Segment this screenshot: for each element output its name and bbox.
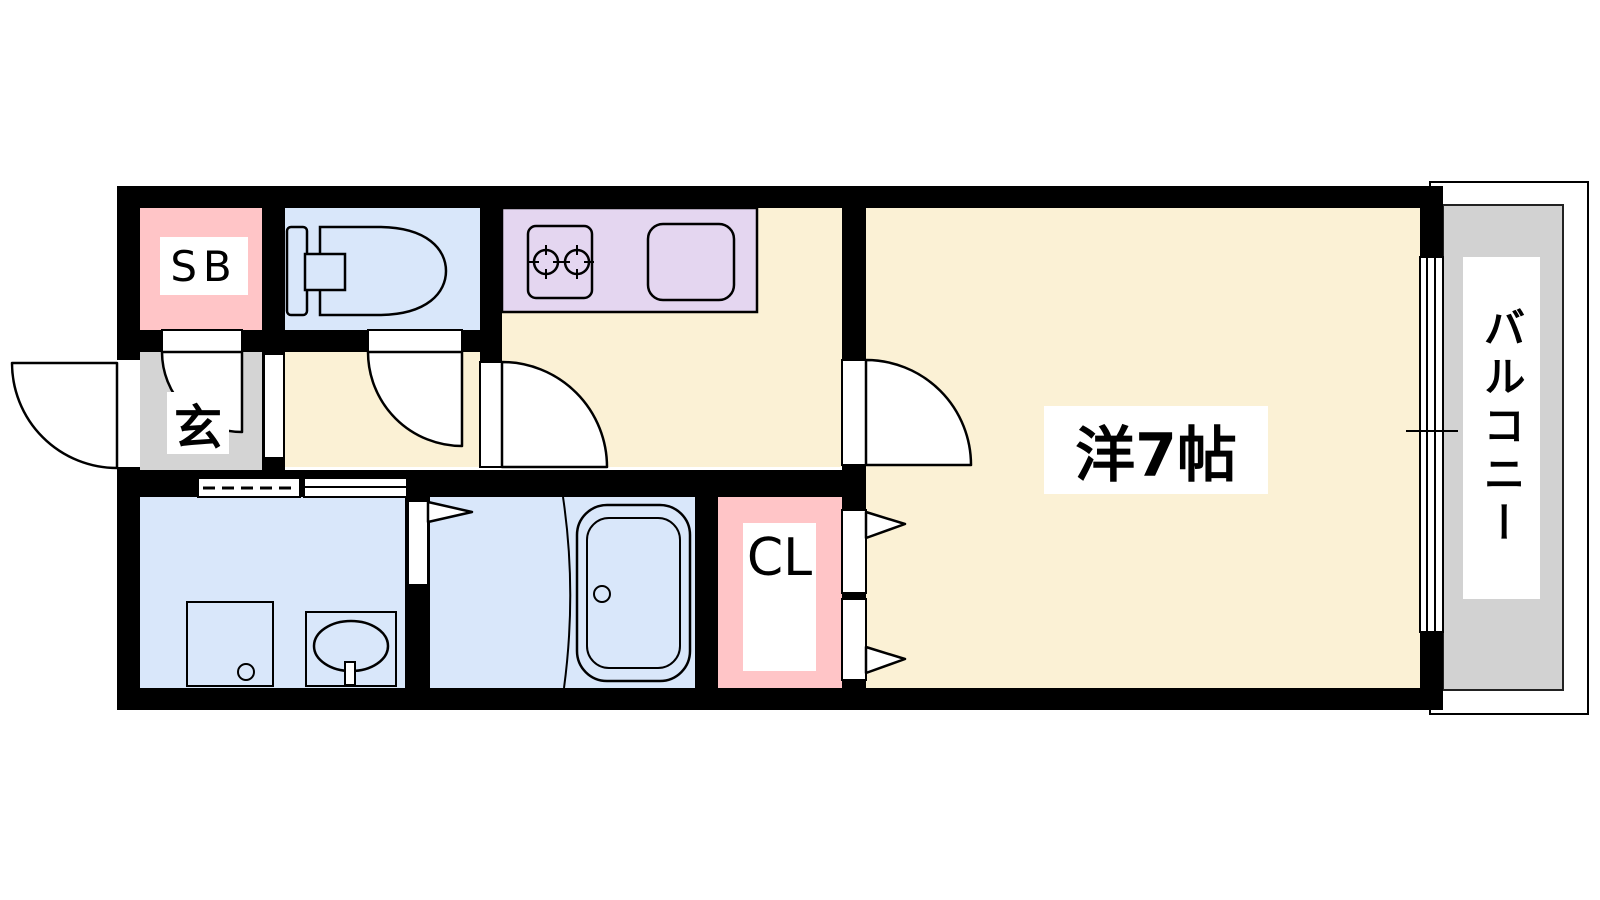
closet-door-panel-top: [842, 510, 866, 593]
toilet-doorway: [368, 330, 462, 352]
balcony-label: バルコニー: [1463, 257, 1540, 599]
vanity-faucet-icon: [345, 662, 355, 685]
balcony-window-opening: [1420, 257, 1443, 632]
wall-sb-toilet: [262, 186, 285, 352]
wall-top: [117, 186, 1443, 208]
wall-kitchen-main: [842, 186, 866, 360]
entrance-doorway: [117, 360, 140, 467]
main-room-doorway: [842, 360, 866, 465]
toilet-flush-unit-icon: [305, 254, 345, 290]
genkan-hall-opening: [264, 354, 284, 458]
closet-label: CL: [743, 523, 816, 671]
wall-bottom: [117, 688, 1443, 710]
sliding-tracks: [203, 487, 407, 488]
wall-toilet-kitchen: [480, 186, 502, 362]
closet-door-panel-bottom: [842, 599, 866, 680]
wall-bath-closet: [695, 497, 718, 688]
shoe-box-opening: [162, 330, 242, 352]
floor-plan-drawing: [0, 0, 1600, 900]
entrance-label: 玄: [167, 392, 229, 454]
bathroom-door-panel: [408, 501, 428, 585]
entrance-door-swing: [12, 363, 117, 468]
main-room-label: 洋7帖: [1044, 406, 1268, 494]
kitchen-doorway: [480, 362, 502, 467]
floor-plan: SB 玄 洋7帖 CL バルコニー: [0, 0, 1600, 900]
shoe-box-label: SB: [160, 237, 248, 295]
